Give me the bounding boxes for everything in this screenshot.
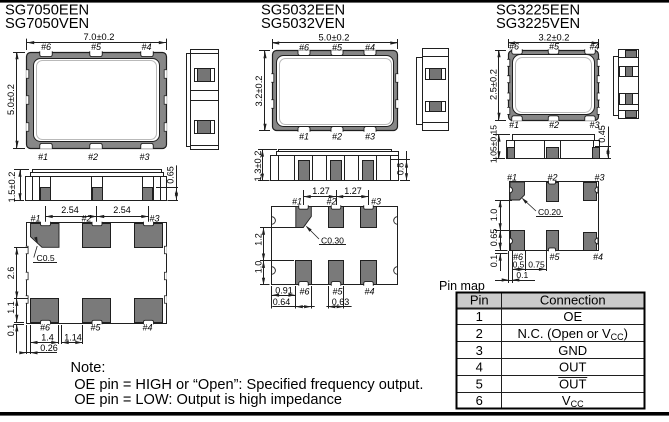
svg-text:#6: #6 [509, 42, 519, 52]
svg-text:#5: #5 [332, 43, 343, 53]
svg-text:0.45: 0.45 [597, 125, 607, 143]
svg-text:5: 5 [476, 376, 483, 391]
svg-text:7.0±0.2: 7.0±0.2 [84, 32, 115, 42]
svg-text:1: 1 [476, 309, 483, 324]
svg-text:1.27: 1.27 [344, 186, 362, 196]
svg-text:0.1: 0.1 [489, 255, 499, 268]
svg-text:0.1: 0.1 [516, 270, 528, 280]
svg-text:5.0±0.2: 5.0±0.2 [319, 32, 350, 42]
svg-text:#5: #5 [332, 287, 343, 297]
svg-text:0.65: 0.65 [489, 229, 499, 247]
svg-text:OE: OE [563, 309, 582, 324]
svg-text:#6: #6 [299, 43, 309, 53]
svg-text:#1: #1 [38, 152, 48, 162]
svg-text:0.8: 0.8 [396, 163, 406, 176]
svg-text:C0.5: C0.5 [37, 253, 55, 263]
svg-text:6: 6 [476, 393, 483, 408]
svg-text:1.05±0.15: 1.05±0.15 [489, 125, 499, 163]
svg-text:#2: #2 [332, 132, 342, 142]
svg-text:4: 4 [476, 360, 483, 375]
svg-text:3.2±0.2: 3.2±0.2 [254, 76, 264, 107]
svg-text:#1: #1 [292, 197, 302, 207]
svg-text:Note:: Note: [71, 360, 106, 376]
svg-text:0.65: 0.65 [165, 166, 175, 184]
svg-text:OUT: OUT [559, 360, 587, 375]
svg-text:OE pin = LOW: Output is high i: OE pin = LOW: Output is high impedance [74, 392, 342, 408]
svg-text:1.3±0.2: 1.3±0.2 [253, 151, 263, 182]
svg-text:#2: #2 [326, 197, 336, 207]
svg-text:#6: #6 [40, 323, 50, 333]
svg-text:C0.20: C0.20 [538, 207, 561, 217]
svg-text:OE pin = HIGH or “Open”: Speci: OE pin = HIGH or “Open”: Specified frequ… [74, 377, 423, 393]
svg-text:0.1: 0.1 [6, 324, 16, 337]
svg-text:5.0±0.2: 5.0±0.2 [6, 84, 16, 115]
svg-text:SG3225VEN: SG3225VEN [496, 16, 580, 32]
svg-text:0.64: 0.64 [273, 297, 291, 307]
svg-text:#4: #4 [589, 42, 599, 52]
svg-text:#2: #2 [88, 152, 98, 162]
svg-text:#6: #6 [41, 42, 51, 52]
svg-text:1.14: 1.14 [64, 333, 82, 343]
svg-text:2: 2 [476, 326, 483, 341]
svg-text:#5: #5 [549, 42, 560, 52]
svg-text:#5: #5 [90, 323, 101, 333]
svg-text:2.54: 2.54 [113, 205, 131, 215]
svg-text:0.26: 0.26 [40, 343, 58, 353]
svg-text:2.54: 2.54 [61, 205, 79, 215]
svg-text:#6: #6 [299, 287, 309, 297]
svg-text:Connection: Connection [540, 293, 606, 308]
svg-text:#4: #4 [142, 323, 152, 333]
svg-text:#3: #3 [139, 152, 149, 162]
svg-text:3: 3 [476, 343, 483, 358]
svg-text:#1: #1 [299, 132, 309, 142]
svg-text:1.4: 1.4 [41, 333, 54, 343]
svg-text:#3: #3 [371, 197, 381, 207]
svg-text:OUT: OUT [559, 376, 587, 391]
svg-text:0.91: 0.91 [275, 286, 293, 296]
svg-text:1.5±0.2: 1.5±0.2 [7, 172, 17, 203]
svg-text:2.6: 2.6 [6, 267, 16, 280]
svg-text:1.0: 1.0 [254, 261, 264, 274]
svg-text:0.63: 0.63 [332, 297, 350, 307]
svg-text:1.2: 1.2 [254, 233, 264, 246]
svg-text:GND: GND [558, 343, 587, 358]
svg-text:#4: #4 [141, 42, 151, 52]
svg-text:0.5: 0.5 [513, 259, 525, 269]
svg-text:#1: #1 [509, 120, 519, 130]
svg-text:1.1: 1.1 [6, 301, 16, 314]
svg-text:#4: #4 [365, 43, 375, 53]
svg-text:SG7050VEN: SG7050VEN [5, 16, 89, 32]
svg-text:Pin: Pin [470, 293, 489, 308]
svg-text:#4: #4 [364, 287, 374, 297]
svg-text:#5: #5 [91, 42, 102, 52]
svg-text:Pin map: Pin map [439, 279, 485, 293]
svg-text:#4: #4 [593, 252, 603, 262]
svg-text:#3: #3 [365, 132, 375, 142]
svg-text:2.5±0.2: 2.5±0.2 [489, 69, 499, 100]
svg-text:1.27: 1.27 [312, 186, 330, 196]
svg-text:#2: #2 [549, 120, 559, 130]
svg-text:#5: #5 [549, 252, 560, 262]
svg-text:0.75: 0.75 [528, 259, 545, 269]
svg-text:SG5032VEN: SG5032VEN [261, 16, 345, 32]
svg-text:1.0: 1.0 [489, 209, 499, 222]
